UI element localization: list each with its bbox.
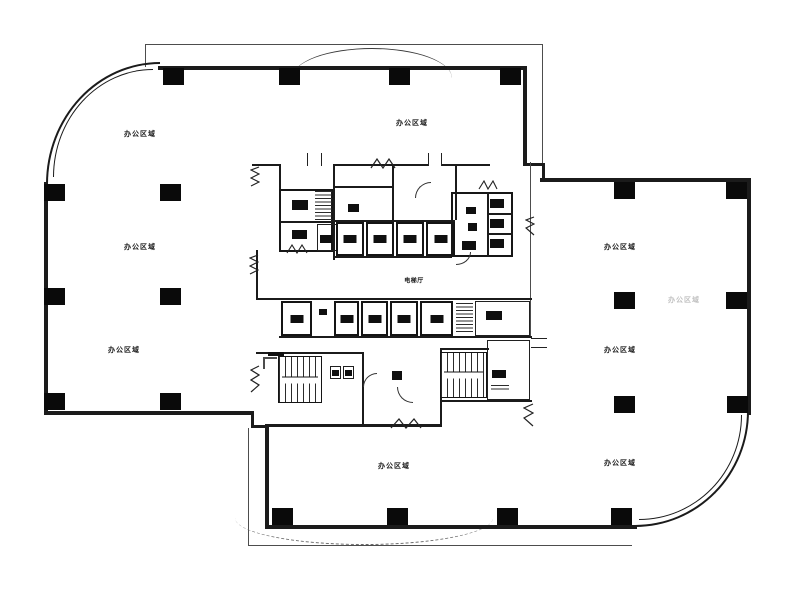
staircase <box>278 356 322 403</box>
core-wall <box>440 400 532 402</box>
curved-wall <box>639 415 742 520</box>
office-area-label: 办公区域 <box>396 120 428 128</box>
elevator-car-icon <box>398 315 411 323</box>
core-wall <box>334 186 392 188</box>
wall-niche <box>428 153 442 166</box>
fixture-mark <box>468 223 477 231</box>
column <box>160 393 181 410</box>
wall <box>44 411 254 415</box>
column <box>387 508 408 525</box>
column <box>726 182 747 199</box>
column <box>611 508 632 525</box>
core-wall <box>256 298 532 300</box>
vent-grille <box>456 303 473 334</box>
core-wall <box>392 166 394 222</box>
office-area-label: 办公区域 <box>124 244 156 252</box>
elevator-shaft <box>281 301 312 336</box>
door-swing-icon <box>415 182 431 198</box>
slab-edge-line <box>145 44 543 45</box>
fixture-mark <box>292 200 308 210</box>
fixture-mark <box>332 370 339 376</box>
expansion-joint-icon <box>250 365 260 393</box>
elevator-car-icon <box>430 315 443 323</box>
elevator-car-icon <box>434 235 447 243</box>
canopy-arc <box>292 48 452 78</box>
column <box>160 184 181 201</box>
wall <box>523 66 527 166</box>
staircase <box>440 352 487 398</box>
elevator-shaft <box>366 222 394 256</box>
double-door-icon <box>478 180 498 190</box>
fixture-mark <box>492 370 506 378</box>
core-wall <box>440 348 489 350</box>
elevator-car-icon <box>368 315 381 323</box>
column <box>727 396 748 413</box>
office-area-label: 办公区域 <box>604 460 636 468</box>
elevator-shaft <box>334 301 359 336</box>
office-area-label: 办公区域 <box>604 244 636 252</box>
wall <box>747 178 751 415</box>
column <box>44 393 65 410</box>
column <box>726 292 747 309</box>
double-door-icon <box>370 158 396 169</box>
elevator-car-icon <box>290 315 303 323</box>
stair-landing <box>282 376 318 383</box>
column <box>163 68 184 85</box>
column <box>389 68 410 85</box>
office-area-label: 办公区域 <box>604 347 636 355</box>
elevator-car-icon <box>340 315 353 323</box>
door-swing-icon <box>363 373 377 387</box>
office-area-label: 办公区域 <box>378 463 410 471</box>
fixture-mark <box>490 199 504 208</box>
expansion-joint-icon <box>523 403 534 427</box>
slab-edge-line <box>542 44 543 164</box>
wall <box>265 525 637 529</box>
fixture-mark <box>392 371 402 380</box>
core-wall <box>487 192 489 257</box>
wall <box>265 428 269 528</box>
wall <box>158 66 527 70</box>
office-area-label: 办公区域 <box>108 347 140 355</box>
fixture-mark <box>462 241 476 250</box>
fixture-mark <box>490 219 504 228</box>
elevator-shaft <box>420 301 453 336</box>
fixture-mark <box>292 230 307 239</box>
slab-edge-line <box>248 545 632 546</box>
fixture-mark <box>345 370 352 376</box>
core-edge-line <box>530 162 531 338</box>
fixture-mark <box>486 311 502 320</box>
elevator-hall-label: 电梯厅 <box>404 279 424 286</box>
vent-grille <box>315 191 332 220</box>
wall-niche <box>531 338 547 348</box>
column <box>497 508 518 525</box>
wall-tick <box>263 357 265 369</box>
core-wall <box>487 233 513 235</box>
core-wall <box>362 352 364 426</box>
column <box>272 508 293 525</box>
vent-grille <box>491 385 509 392</box>
core-wall <box>279 336 532 338</box>
office-area-label-faint: 办公区域 <box>668 297 700 305</box>
door-swing-icon <box>397 387 413 403</box>
column <box>614 292 635 309</box>
core-wall <box>487 213 513 215</box>
expansion-joint-icon <box>249 254 259 275</box>
fixture-mark <box>348 204 359 212</box>
curved-wall <box>53 69 153 177</box>
expansion-joint-icon <box>525 216 535 236</box>
column <box>44 288 65 305</box>
elevator-car-icon <box>374 235 387 243</box>
column <box>279 68 300 85</box>
core-wall <box>334 256 452 258</box>
double-door-icon <box>286 244 308 254</box>
elevator-shaft <box>390 301 418 336</box>
stair-landing <box>444 372 483 379</box>
fixture-mark <box>320 235 332 243</box>
fixture-mark <box>490 239 504 248</box>
elevator-shaft <box>336 222 364 256</box>
wall-niche <box>307 153 322 166</box>
office-area-label: 办公区域 <box>124 131 156 139</box>
floor-plan: 办公区域 办公区域 办公区域 办公区域 办公区域 办公区域 办公区域 办公区域 … <box>0 0 800 590</box>
column <box>500 68 521 85</box>
wall-tick <box>263 357 277 359</box>
fixture-mark <box>268 352 284 356</box>
elevator-car-icon <box>344 235 357 243</box>
elevator-shaft <box>396 222 424 256</box>
door-swing-icon <box>456 252 471 265</box>
column <box>614 182 635 199</box>
expansion-joint-icon <box>250 166 260 187</box>
double-door-icon <box>390 417 422 429</box>
room <box>475 301 530 336</box>
column <box>44 184 65 201</box>
core-wall <box>280 221 332 223</box>
fixture-mark <box>319 309 327 315</box>
wall <box>540 178 751 182</box>
core-wall <box>333 164 490 166</box>
elevator-shaft <box>361 301 388 336</box>
elevator-car-icon <box>404 235 417 243</box>
column <box>160 288 181 305</box>
column <box>614 396 635 413</box>
